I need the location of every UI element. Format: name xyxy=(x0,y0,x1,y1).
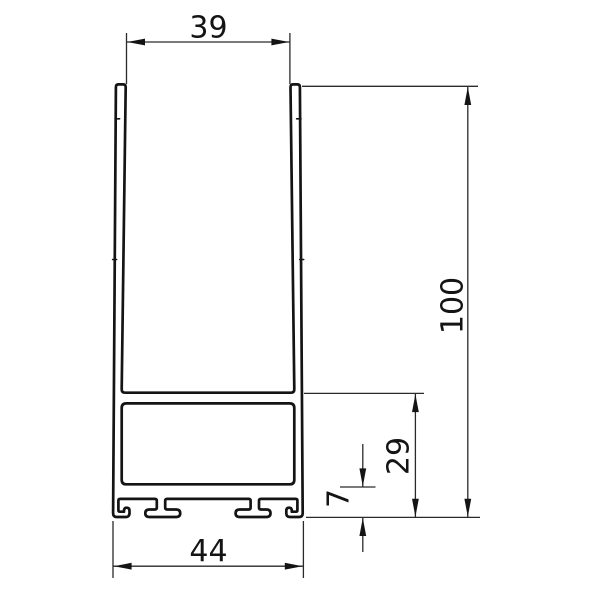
dimension-label-bottom-width: 44 xyxy=(189,534,227,569)
arrowhead-up-icon xyxy=(464,87,471,105)
dimension-label-top-width: 39 xyxy=(189,11,227,46)
arrowhead-down-icon xyxy=(359,468,366,486)
dimension-label-foot-height: 7 xyxy=(322,489,357,508)
arrowhead-right-icon xyxy=(271,39,289,46)
arrowhead-up-icon xyxy=(359,518,366,536)
technical-drawing-canvas: 39 100 29 7 xyxy=(0,0,600,600)
profile-cross-section xyxy=(113,84,304,517)
arrowhead-left-icon xyxy=(114,563,132,570)
dimension-label-overall-height: 100 xyxy=(436,277,471,334)
arrowhead-right-icon xyxy=(285,563,303,570)
profile-body-outline xyxy=(113,84,303,517)
dimension-label-lower-section: 29 xyxy=(382,437,417,475)
arrowhead-down-icon xyxy=(464,499,471,517)
arrowhead-left-icon xyxy=(127,39,145,46)
arrowhead-down-icon xyxy=(412,499,419,517)
technical-drawing-page: 39 100 29 7 xyxy=(0,0,600,600)
dimension-bottom-width: 44 xyxy=(113,521,303,578)
dimension-foot-height: 7 xyxy=(322,444,376,552)
dimension-top-width: 39 xyxy=(127,11,290,85)
arrowhead-up-icon xyxy=(412,394,419,412)
